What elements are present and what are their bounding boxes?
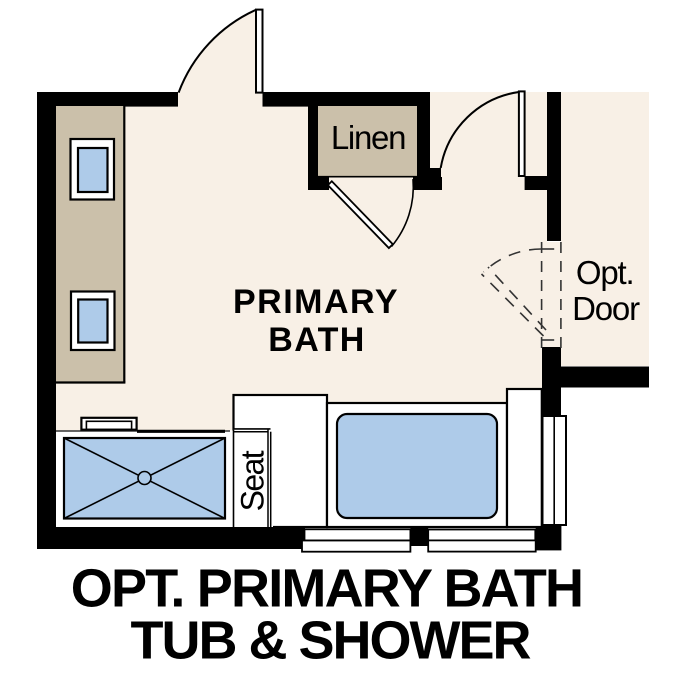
svg-text:OPT. PRIMARY BATH: OPT. PRIMARY BATH [71, 558, 582, 618]
svg-text:Seat: Seat [235, 450, 271, 511]
svg-text:Opt.: Opt. [576, 254, 634, 291]
svg-text:PRIMARY: PRIMARY [233, 283, 399, 321]
svg-text:TUB & SHOWER: TUB & SHOWER [131, 610, 531, 670]
svg-text:BATH: BATH [268, 321, 366, 359]
svg-text:Linen: Linen [331, 119, 405, 156]
svg-text:Door: Door [572, 290, 640, 327]
